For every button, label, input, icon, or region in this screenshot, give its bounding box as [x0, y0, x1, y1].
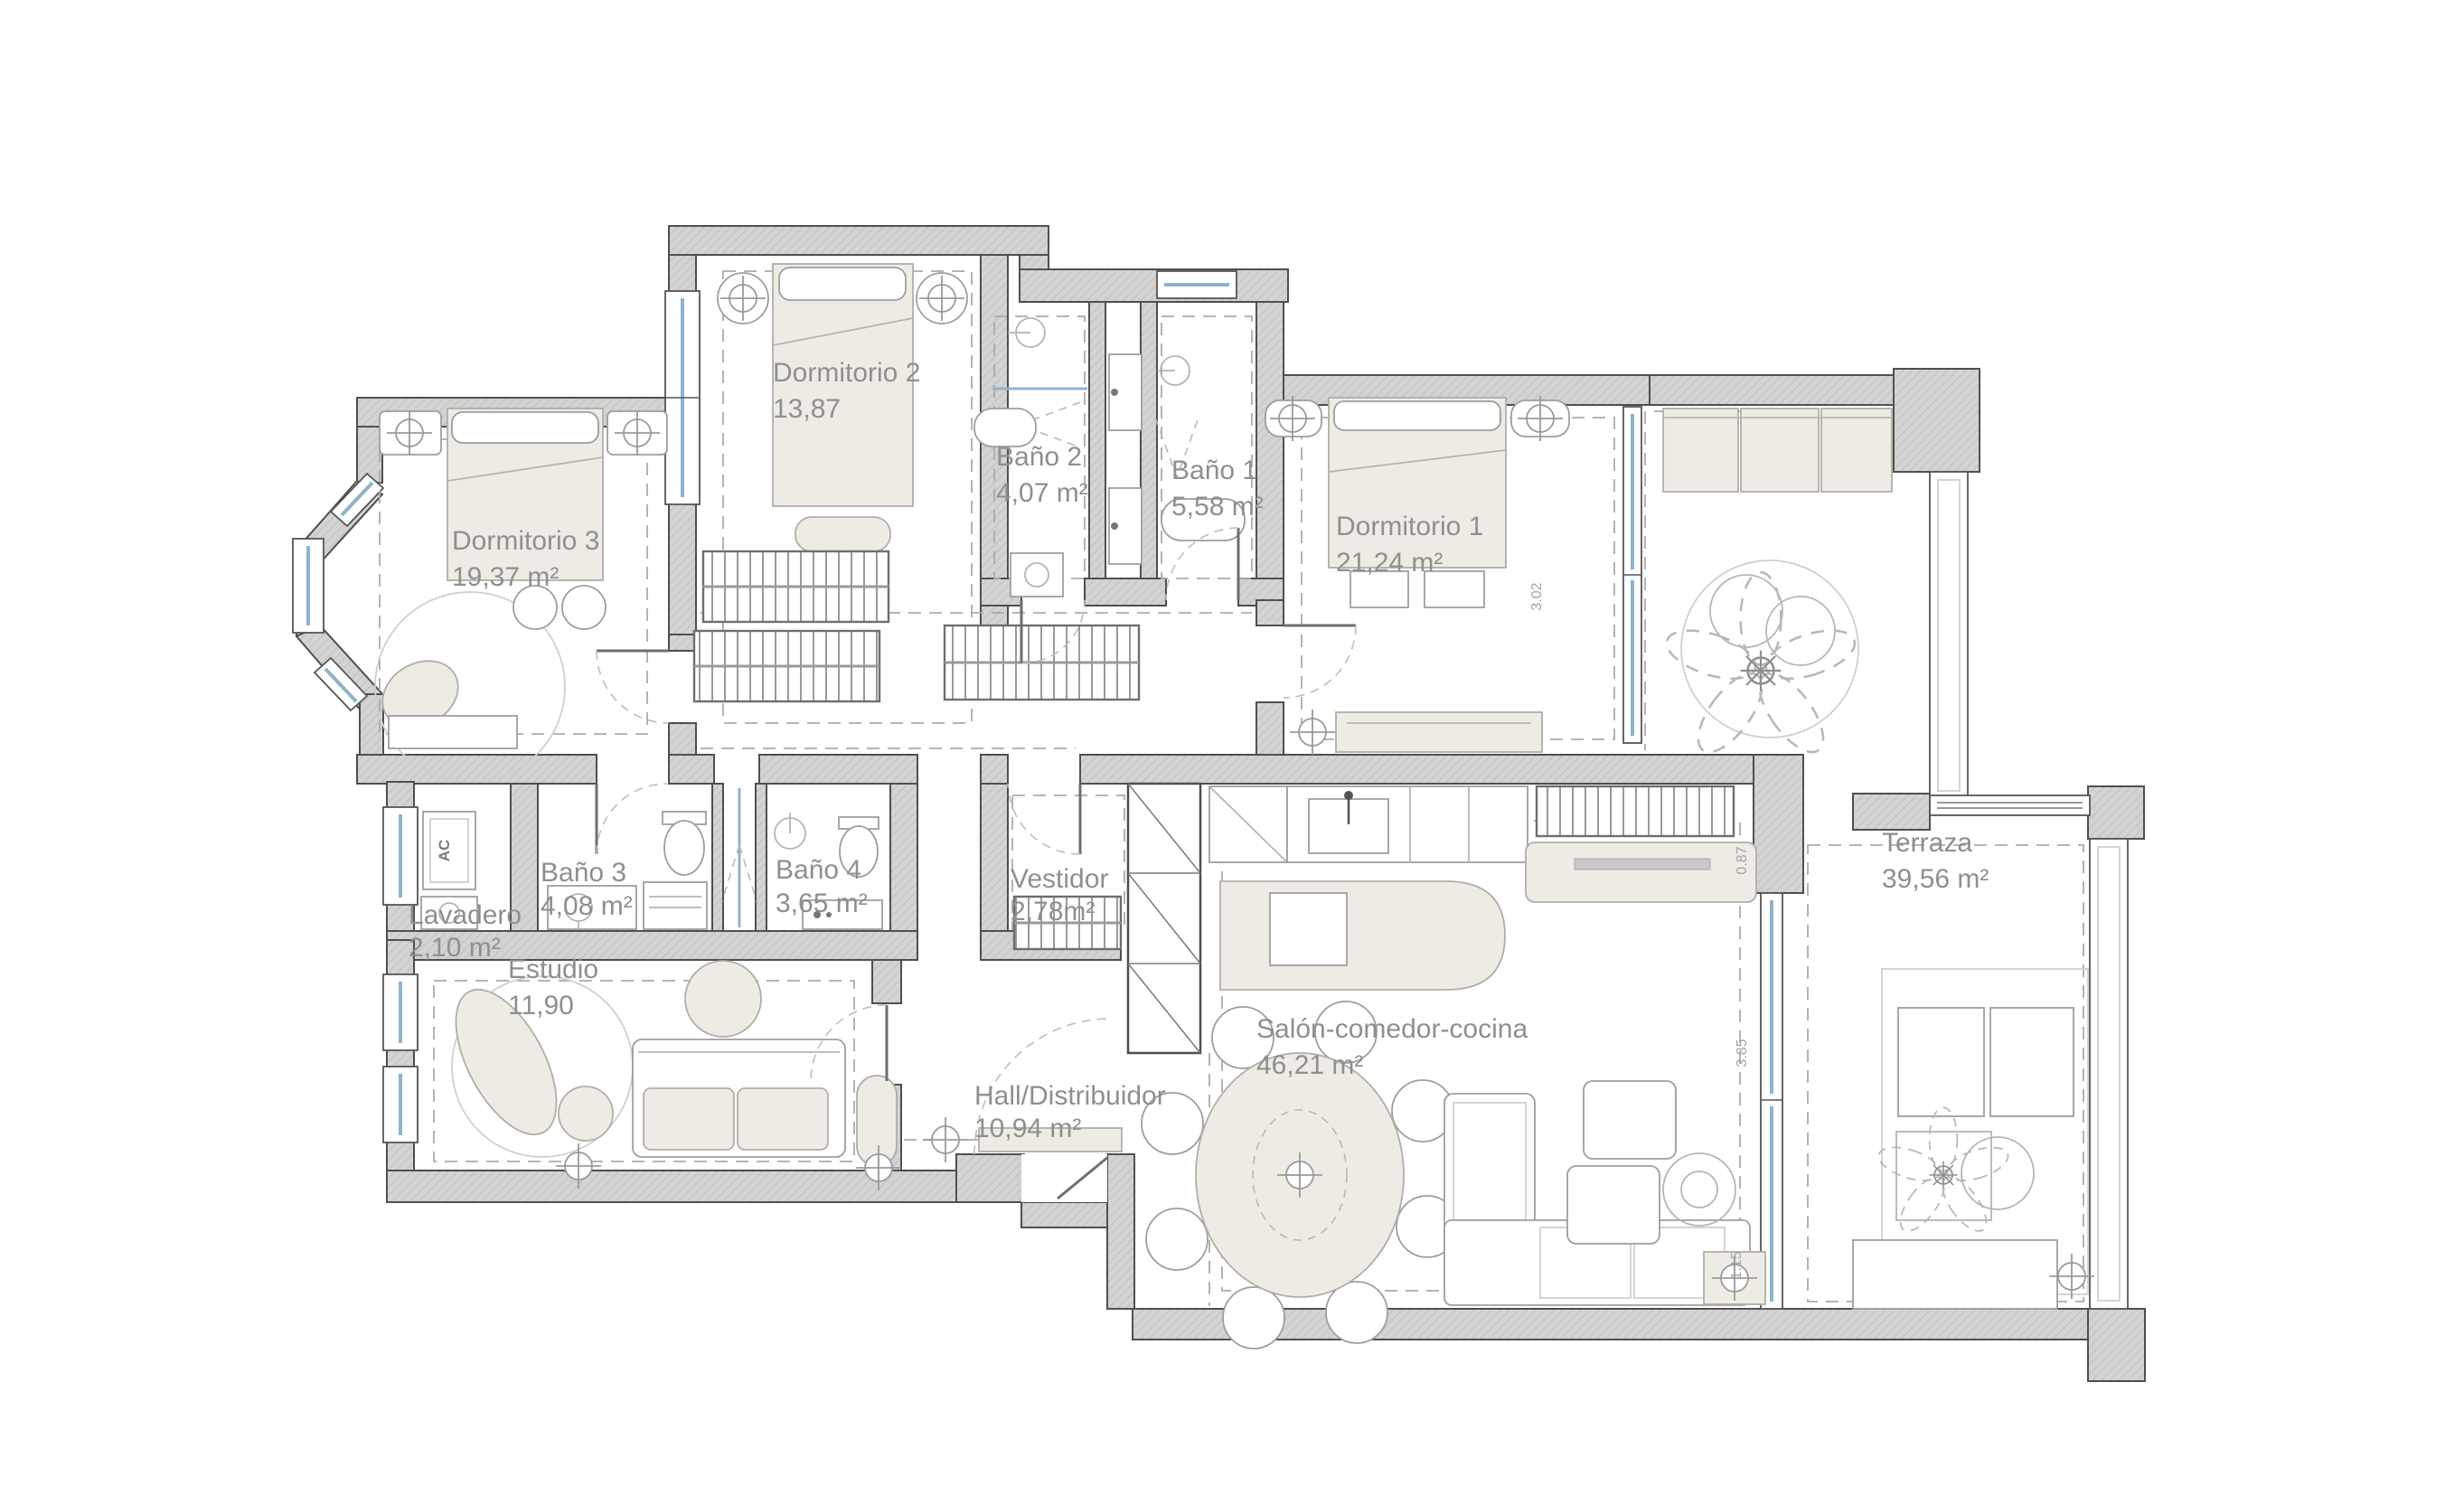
- kitchen-island: [1220, 881, 1505, 990]
- label-bano3-area: 4,08 m²: [541, 891, 633, 921]
- bathtub-bano2: [974, 409, 1036, 447]
- door-dorm1: [1284, 625, 1356, 698]
- dim-salon-right-top: 0.87: [1735, 846, 1750, 874]
- window-lavadero-left: [383, 807, 418, 905]
- sideboard-salon: [1526, 842, 1756, 902]
- stool-dorm3-2: [562, 586, 606, 629]
- desk-dorm3: [371, 648, 517, 748]
- sideboard-dorm1: [1336, 712, 1542, 752]
- rug-terrace: [1681, 560, 1858, 738]
- sofa-terrace: [1663, 409, 1892, 492]
- label-estudio-area: 11,90: [508, 991, 574, 1020]
- door-dorm3: [597, 651, 669, 723]
- armchair-salon-2: [1567, 1166, 1660, 1244]
- kitchen-counter: [1209, 786, 1528, 862]
- label-dorm2-area: 13,87: [773, 394, 841, 424]
- bench-terrace: [1853, 1240, 2057, 1309]
- label-bano3-name: Baño 3: [541, 858, 626, 888]
- floor-plan-page: AC: [0, 0, 2464, 1495]
- label-hall-name: Hall/Distribuidor: [974, 1081, 1166, 1111]
- door-bano3: [597, 784, 667, 854]
- dim-dorm1-window: 3.02: [1529, 582, 1545, 610]
- pouf-estudio: [685, 961, 761, 1037]
- label-bano2-name: Baño 2: [996, 442, 1082, 472]
- label-salon-area: 46,21 m²: [1256, 1050, 1363, 1080]
- label-bano4-name: Baño 4: [776, 855, 861, 885]
- window-dorm1-terrace: [1623, 407, 1641, 743]
- dim-salon-right-window: 3.85: [1735, 1039, 1750, 1067]
- window-salon-terrace: [1761, 893, 1782, 1309]
- side-table-salon: [1663, 1153, 1735, 1226]
- label-dorm1-name: Dormitorio 1: [1336, 512, 1483, 541]
- duct-shaft: [1128, 784, 1200, 1053]
- window-dorm2-left: [665, 291, 700, 504]
- window-terrace-connector: [1930, 795, 2090, 815]
- closet-salon-top: [1537, 786, 1734, 836]
- window-estudio-left-1: [383, 974, 418, 1050]
- bench-bano3: [644, 882, 707, 929]
- label-dorm3-name: Dormitorio 3: [452, 526, 599, 556]
- glass-shower-corridor: [721, 788, 757, 927]
- label-vestidor-area: 2,78m²: [1011, 897, 1095, 926]
- label-bano1-area: 5,58 m²: [1171, 492, 1264, 522]
- label-terraza-name: Terraza: [1882, 828, 1972, 858]
- stool-dorm3-1: [513, 586, 557, 629]
- label-lavadero-area: 2,10 m²: [409, 933, 501, 963]
- label-bano2-area: 4,07 m²: [996, 478, 1088, 508]
- armchair-salon-1: [1584, 1081, 1676, 1159]
- door-vestidor: [1008, 784, 1080, 854]
- label-estudio-name: Estudio: [508, 954, 598, 984]
- window-bano1-top: [1157, 271, 1237, 298]
- sink-bano2: [1011, 553, 1063, 597]
- ac-label: AC: [436, 840, 453, 862]
- floor-plan-drawing: AC: [0, 0, 2464, 1495]
- label-lavadero-name: Lavadero: [409, 900, 522, 930]
- double-vanity: [1109, 354, 1142, 564]
- shower-bano4: [775, 813, 805, 849]
- dim-salon-right-bottom: 1.15: [1729, 1251, 1745, 1279]
- label-terraza-area: 39,56 m²: [1882, 864, 1989, 894]
- planter-upper-terrace: [1930, 472, 1968, 799]
- label-dorm1-area: 21,24 m²: [1336, 548, 1443, 578]
- label-dorm3-area: 19,37 m²: [452, 562, 559, 592]
- label-dorm2-name: Dormitorio 2: [773, 358, 920, 388]
- window-estudio-left-2: [383, 1067, 418, 1142]
- label-hall-area: 10,94 m²: [974, 1114, 1081, 1143]
- planter-lower-terrace: [2090, 839, 2128, 1309]
- plant-terrace-upper: [1661, 572, 1861, 762]
- label-salon-name: Salón-comedor-cocina: [1256, 1014, 1528, 1044]
- label-bano1-name: Baño 1: [1171, 456, 1257, 485]
- plant-terrace-lower: [1875, 1107, 2034, 1237]
- bay-window-vertical: [293, 539, 324, 633]
- label-vestidor-name: Vestidor: [1011, 864, 1108, 894]
- ac-unit: AC: [423, 812, 475, 889]
- label-bano4-area: 3,65 m²: [776, 889, 868, 918]
- sofa-estudio: [633, 1039, 845, 1157]
- bed-dorm2: [718, 264, 967, 551]
- plant-estudio: [857, 1076, 897, 1166]
- toilet-bano3: [663, 812, 706, 875]
